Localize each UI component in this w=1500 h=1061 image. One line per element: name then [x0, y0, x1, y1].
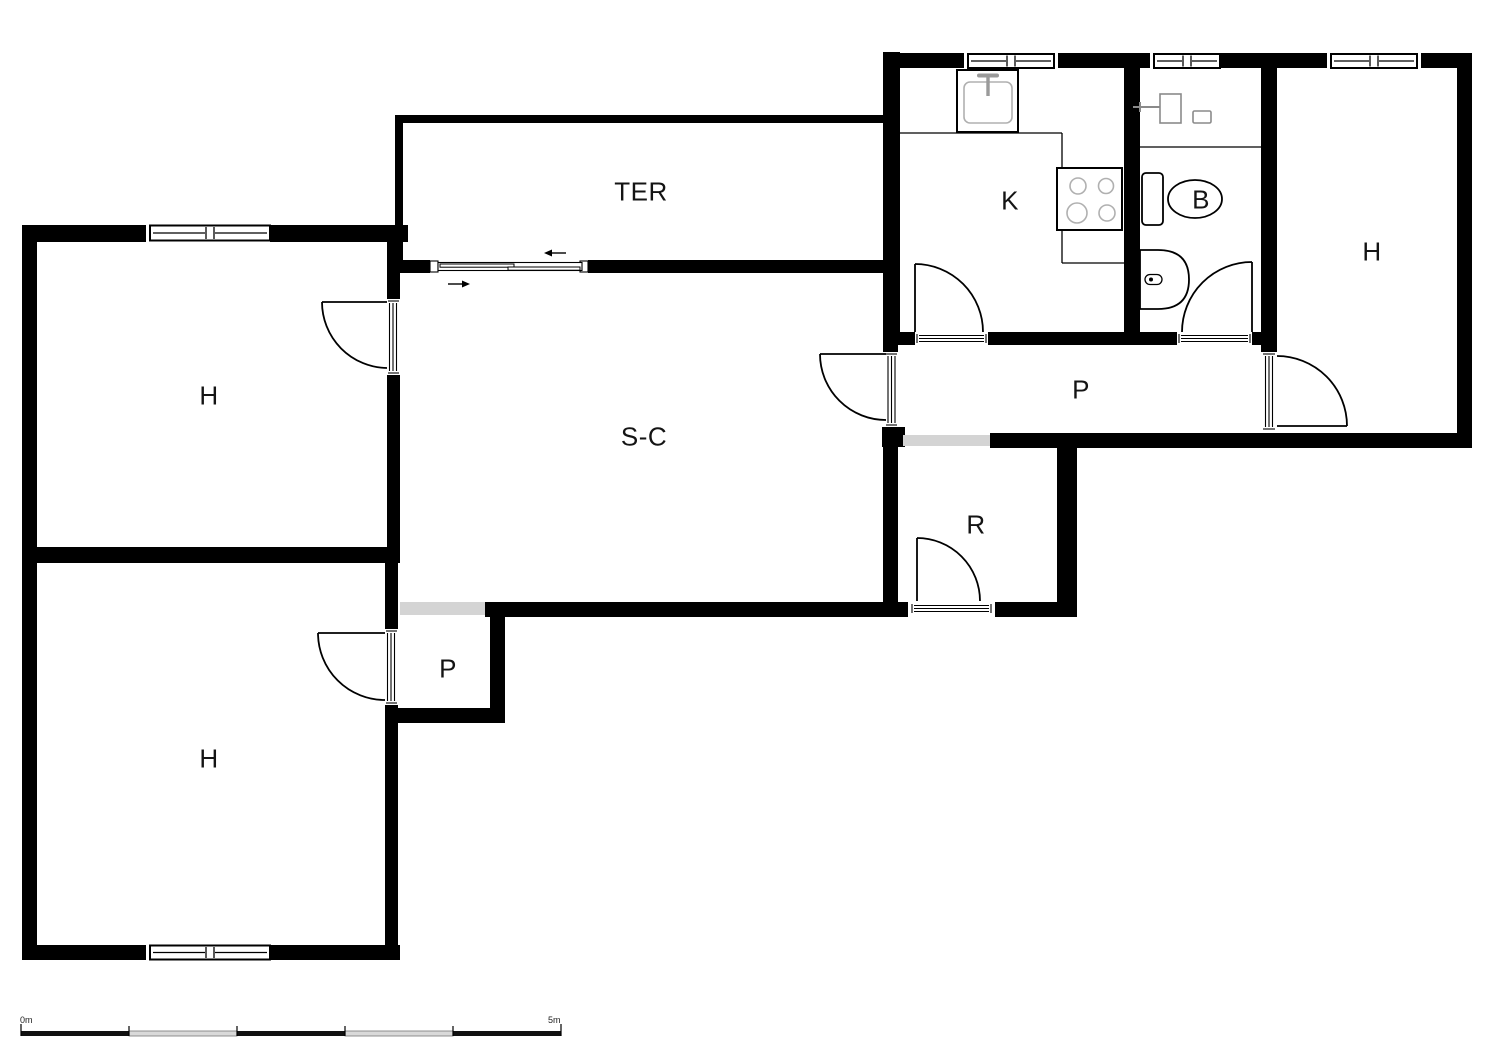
threshold-bathroom — [1177, 333, 1252, 344]
door-thresholds — [385, 299, 1276, 705]
floor-plan-drawing — [0, 0, 1500, 1061]
room-label-k: K — [1001, 186, 1019, 217]
room-label-p-right: P — [1072, 375, 1090, 406]
room-label-r: R — [966, 510, 985, 541]
room-label-s-c: S-C — [621, 422, 667, 453]
threshold-h-top-left — [387, 299, 400, 375]
bath-sink-icon — [1133, 94, 1211, 123]
room-label-p-left: P — [439, 654, 457, 685]
threshold-h-bottom-left — [385, 629, 398, 705]
window-h-top-left — [150, 226, 270, 241]
door-h-top-left — [322, 302, 387, 368]
threshold-sc-p — [885, 352, 898, 427]
scale-end-label: 5m — [548, 1015, 561, 1025]
door-bathroom — [1182, 262, 1252, 332]
window-bathroom — [1154, 54, 1220, 68]
room-label-h-top-left: H — [199, 381, 218, 412]
threshold-p-h-right — [1262, 352, 1276, 433]
room-label-ter: TER — [614, 177, 668, 208]
windows — [150, 54, 1417, 960]
toilet-icon — [1142, 173, 1222, 225]
threshold-r — [908, 603, 995, 614]
passage-sc-to-p — [400, 602, 485, 615]
scale-start-label: 0m — [20, 1015, 33, 1025]
stove-icon — [1057, 168, 1122, 230]
bidet-icon — [1140, 250, 1189, 309]
threshold-kitchen — [915, 333, 988, 344]
door-sc-p — [820, 354, 886, 420]
passage-p-to-r — [903, 435, 990, 446]
kitchen-sink-icon — [957, 70, 1018, 132]
window-h-right — [1331, 54, 1417, 68]
floor-plan-page: TERHS-CKBHPRPH 0m 5m — [0, 0, 1500, 1061]
slide-arrow-left — [544, 250, 566, 257]
scale-bar — [21, 1024, 561, 1036]
slide-arrow-right — [448, 281, 470, 288]
sliding-door-ter — [430, 250, 588, 288]
door-kitchen — [915, 264, 983, 332]
open-passages — [400, 435, 990, 615]
door-swings — [318, 262, 1347, 700]
window-kitchen — [968, 54, 1054, 68]
room-label-h-right: H — [1362, 237, 1381, 268]
door-h-bottom-left — [318, 633, 385, 700]
door-p-h-right — [1277, 356, 1347, 426]
window-h-bottom-left — [150, 946, 270, 960]
room-label-h-bottom-left: H — [199, 744, 218, 775]
walls — [22, 52, 1472, 960]
kitchen-fixtures — [900, 70, 1124, 263]
door-r — [917, 538, 980, 601]
room-label-b: B — [1192, 185, 1210, 216]
